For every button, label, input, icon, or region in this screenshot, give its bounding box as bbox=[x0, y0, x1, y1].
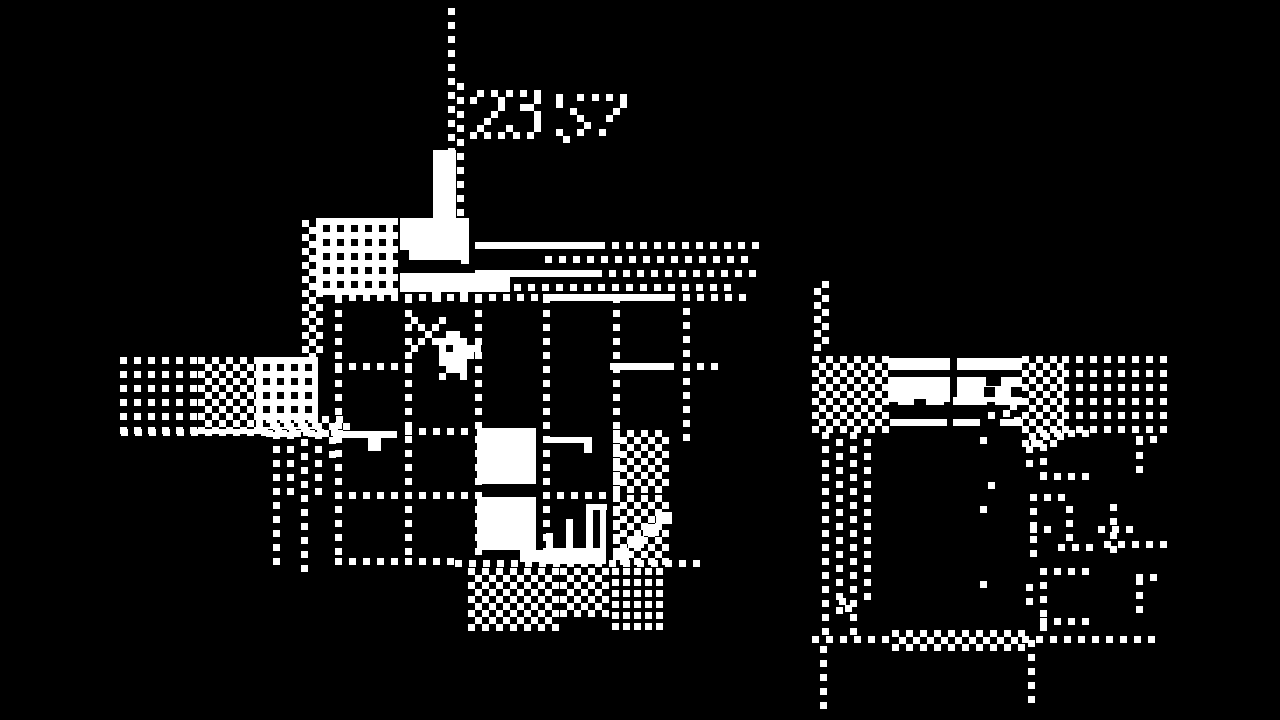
left-dock-platform bbox=[120, 355, 346, 431]
room-object-bottom bbox=[477, 497, 536, 550]
room-object-top bbox=[477, 428, 536, 484]
staircase[interactable] bbox=[546, 503, 608, 565]
game-screen: 23 57 bbox=[0, 0, 1280, 720]
left-building bbox=[300, 215, 760, 630]
timer-value: 23 57 bbox=[448, 85, 449, 86]
right-building bbox=[810, 280, 1165, 705]
timer-display: 23 57 bbox=[448, 85, 638, 135]
